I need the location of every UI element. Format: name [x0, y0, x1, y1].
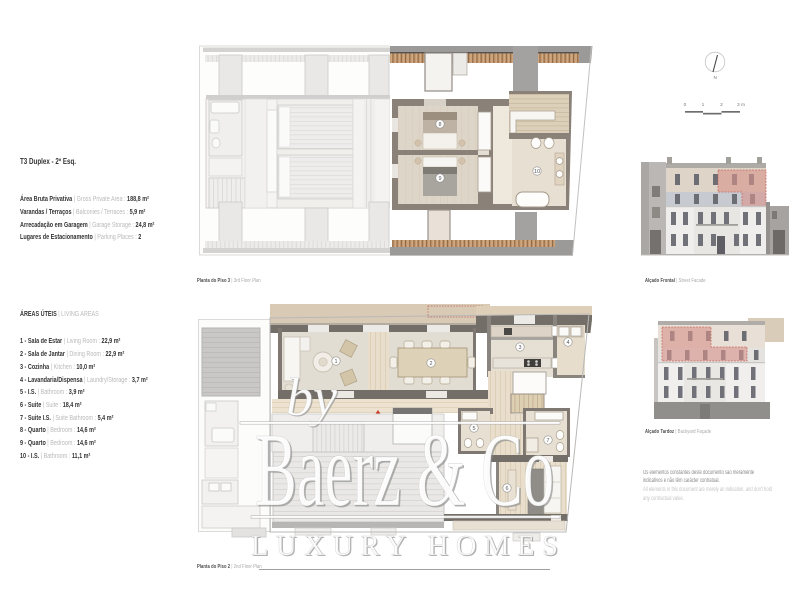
- svg-text:1: 1: [702, 102, 705, 108]
- svg-text:9: 9: [438, 176, 441, 182]
- svg-text:0: 0: [684, 102, 687, 108]
- svg-text:N: N: [714, 75, 718, 81]
- svg-text:6: 6: [505, 486, 508, 492]
- svg-text:2: 2: [429, 361, 432, 367]
- svg-text:3 m: 3 m: [737, 102, 745, 108]
- svg-text:1: 1: [334, 359, 337, 365]
- svg-text:8: 8: [438, 122, 441, 128]
- svg-text:7: 7: [546, 438, 549, 444]
- svg-text:5: 5: [472, 426, 475, 432]
- svg-text:4: 4: [566, 340, 569, 346]
- svg-text:2: 2: [720, 102, 723, 108]
- svg-text:3: 3: [518, 345, 521, 351]
- svg-text:10: 10: [534, 169, 540, 175]
